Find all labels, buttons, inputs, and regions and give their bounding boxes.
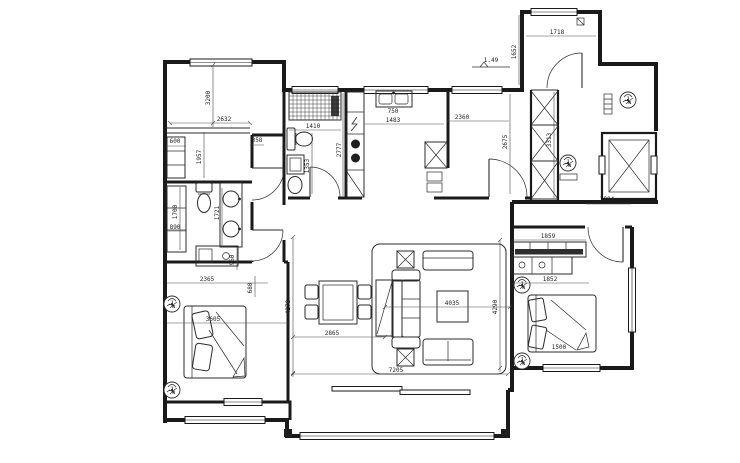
dim-label-1721: 1721 [214,205,221,220]
dim-label-960: 960 [229,254,236,265]
plant-icon [164,382,180,398]
corner-post [284,429,292,437]
corner-marker [577,18,584,25]
dining-chair [358,285,371,299]
sofa-loveseat [423,339,473,365]
window [185,417,265,424]
living-dining [305,244,506,374]
dim-label-680: 680 [247,282,254,293]
floor-plan-canvas: 1.49 [0,0,740,463]
sink-icon [287,155,304,194]
dim-label-600: 600 [170,138,181,145]
wardrobe-front [167,128,250,133]
dim-label-7205: 7205 [389,367,404,374]
window [224,399,262,406]
plant-icon [514,277,530,293]
level-annotation: 1.49 [472,57,510,67]
window [364,87,428,94]
sliding-door [332,387,470,395]
cabinet [512,257,572,274]
dim-label-1410: 1410 [306,123,321,130]
dim-label-4035: 4035 [445,300,460,307]
dim-label-2365: 2365 [200,276,215,283]
dim-label-890: 890 [170,224,181,231]
door-arc [252,168,284,200]
kitchen-counter [347,92,364,197]
dim-label-2777: 2777 [336,142,343,157]
window [452,87,502,94]
entry-level-label: 1.49 [484,57,499,64]
dim-label-3200: 3200 [205,90,212,105]
door-arc [310,167,340,197]
louver-icon [604,94,612,114]
bed-blanket [546,300,589,350]
burner-icon [351,140,360,149]
dim-label-1718: 1718 [550,29,565,36]
dimension-lines [166,15,631,377]
side-table [397,251,414,268]
dim-label-1859: 1859 [541,233,556,240]
window [300,433,494,440]
dim-label-3313: 3313 [546,132,553,147]
dim-label-2632: 2632 [217,116,232,123]
wardrobe [512,242,586,257]
sofa-main [392,270,420,348]
power-icon [351,117,357,131]
window [629,268,636,332]
dim-label-1500: 1500 [552,344,567,351]
dim-label-4290: 4290 [492,299,499,314]
dining-chair [305,305,318,319]
pillow [528,325,547,349]
bench-cushion [423,251,473,270]
pillow [192,343,213,371]
dim-label-2865: 2865 [325,330,340,337]
window [531,9,577,16]
dim-label-750: 750 [388,108,399,115]
pillow [191,310,213,339]
dim-label-358: 358 [252,137,263,144]
dim-label-4278: 4278 [285,299,292,314]
dim-label-3004: 3004 [600,196,615,203]
dim-label-1957: 1957 [196,149,203,164]
kitchen [347,91,447,197]
shower-icon [289,92,341,120]
dining-chair [358,305,371,319]
window [543,365,600,372]
plant-icon [164,296,180,312]
burner-icon [351,154,360,163]
door-arc [489,159,527,197]
dining-table [319,281,357,324]
toilet-icon [196,183,212,213]
dim-label-1700: 1700 [172,204,179,219]
plant-icon [620,92,636,108]
plant-stand [560,174,577,180]
corner-post [501,429,509,437]
flue-icon [425,142,447,192]
window [190,59,252,66]
toilet-icon [287,128,313,150]
dim-label-3605: 3605 [206,316,221,323]
double-sink-icon [220,183,242,247]
dim-label-1353: 1353 [304,158,311,173]
tl-bedroom [167,128,250,178]
dim-label-1652: 1652 [511,44,518,59]
door-arc [547,53,582,88]
top-bathroom [287,92,341,194]
dim-label-1483: 1483 [386,117,401,124]
plant-icon [514,353,530,369]
plant-icon [560,155,576,171]
dining-chair [305,285,318,299]
dim-label-2360: 2360 [455,114,470,121]
door-arc [588,227,623,262]
elevator-icon [599,133,657,199]
pillow [528,298,547,322]
side-table [397,349,414,366]
dim-label-2675: 2675 [502,134,509,149]
dim-label-1852: 1852 [543,276,558,283]
tv-cabinet [376,280,393,336]
door-arc [252,230,283,261]
